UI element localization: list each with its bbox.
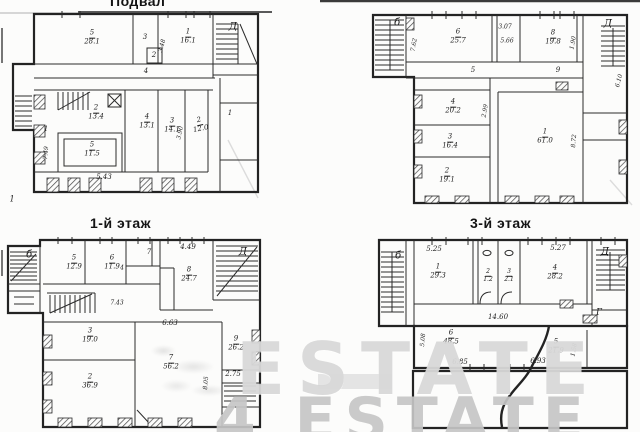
basement-plan <box>13 11 258 192</box>
basement-stairs-right <box>216 24 257 64</box>
floor3-inner-walls <box>406 240 627 368</box>
watermark-patch <box>318 374 392 389</box>
basement-closet <box>147 48 162 63</box>
wc-fixtures <box>480 250 513 304</box>
basement-stairs-middle <box>58 92 90 110</box>
floor1-inner-walls <box>8 240 260 427</box>
floor1-wall-piers <box>43 330 260 427</box>
scan-page: 528.13116.1Д3.4824213.4413.1314.13.90212… <box>0 0 640 432</box>
floor3-terrace-outline <box>413 371 627 428</box>
floor2-outer-walls <box>373 15 627 203</box>
floor1-stairs-middle <box>50 294 92 313</box>
floor2-inner-walls <box>406 15 627 203</box>
floor2-stairs-right <box>601 26 625 66</box>
basement-title: Подвал <box>110 0 165 9</box>
floor1-stairs-bottom-right <box>224 386 256 401</box>
floor3-curved-wall <box>501 326 549 427</box>
floor1-stairs-right <box>216 246 258 296</box>
vent-shaft-symbol <box>108 94 121 107</box>
third-floor-title: 3-й этаж <box>470 215 531 231</box>
floor2-stairs-left <box>375 20 404 70</box>
first-floor-plan <box>8 237 260 427</box>
basement-coldroom-inner <box>64 139 116 166</box>
floor3-outer-walls-upper <box>379 240 627 326</box>
first-floor-title: 1-й этаж <box>90 215 151 231</box>
floor3-outer-walls-wing <box>414 326 627 368</box>
basement-stairs-left <box>15 96 32 126</box>
floor3-stairs-left <box>381 252 404 312</box>
second-floor-plan <box>373 11 627 203</box>
floor2-wall-piers <box>406 18 627 203</box>
floor1-stairs-left <box>10 252 37 281</box>
third-floor-plan <box>379 237 627 428</box>
